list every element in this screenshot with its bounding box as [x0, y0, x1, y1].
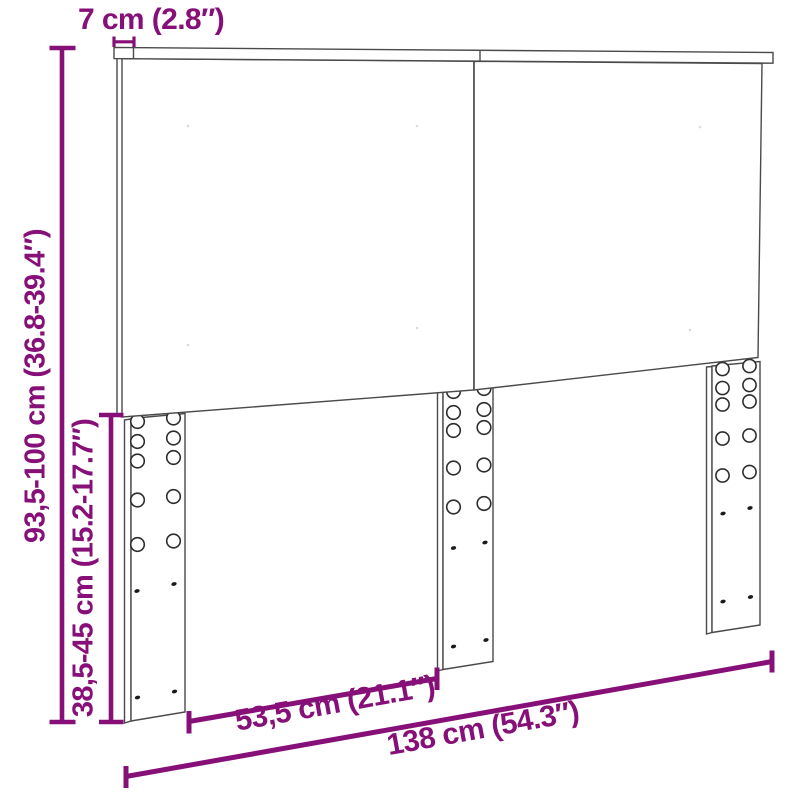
right-panel [474, 61, 762, 390]
dim-label-leg-height: 38,5-45 cm (15.2-17.7″) [70, 419, 99, 717]
dimension-diagram: 7 cm (2.8″) 93,5-100 cm (36.8-39.4″) 38,… [0, 0, 800, 800]
middle-leg [438, 382, 494, 671]
dim-line-leg-height [99, 415, 124, 722]
right-leg-side [707, 367, 713, 635]
left-leg [125, 411, 186, 723]
left-leg-side [125, 419, 132, 723]
headboard-panels [117, 59, 762, 417]
middle-leg-side [438, 389, 444, 672]
dim-label-total-height: 93,5-100 cm (36.8-39.4″) [22, 229, 51, 543]
dim-label-top-depth: 7 cm (2.8″) [78, 5, 224, 35]
right-leg [707, 359, 761, 634]
left-panel-side-edge [117, 59, 122, 417]
dim-bracket-top-depth [114, 37, 134, 48]
left-panel [122, 59, 474, 417]
